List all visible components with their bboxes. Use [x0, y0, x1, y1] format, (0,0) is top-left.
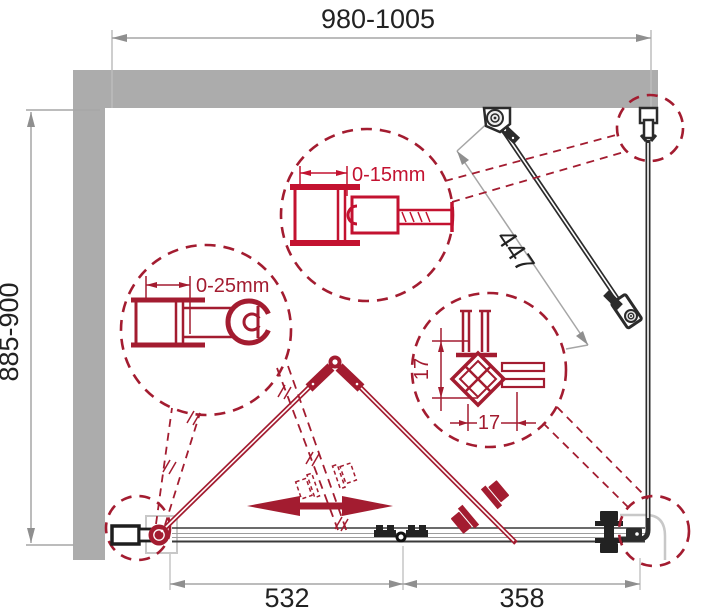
arrowhead-mid-right — [403, 580, 417, 588]
shower-enclosure-diagram: 980-1005 885-900 532 358 — [0, 0, 704, 608]
panel-to-support-clamp — [606, 293, 642, 328]
diagonal-label: 447 — [490, 224, 540, 278]
corner-profile-vertical-label: 17 — [411, 358, 433, 380]
door-swing-phantom — [163, 366, 357, 535]
top-wall-profile — [640, 108, 657, 141]
detail-corner-profile: 17 17 — [411, 311, 544, 434]
guide-clamp-left — [374, 525, 396, 537]
slide-direction-arrow — [247, 496, 393, 516]
arrowhead-top — [457, 151, 469, 165]
arrowhead-right — [636, 34, 651, 42]
phantom-knob — [295, 460, 358, 502]
detail-circle-left-profile — [121, 245, 291, 415]
wall-profile-top-label: 0-15mm — [352, 164, 425, 186]
guide-roller — [397, 533, 405, 541]
dimension-bottom: 532 358 — [170, 546, 640, 608]
door-pivot — [149, 525, 170, 546]
roller-knob-black — [595, 511, 623, 553]
wall-left — [73, 70, 105, 560]
arrowhead-right — [625, 580, 640, 588]
arrowhead-bottom — [576, 331, 588, 345]
right-fixed-panel — [606, 108, 657, 539]
wall-top — [73, 70, 658, 108]
top-width-label: 980-1005 — [321, 4, 435, 34]
left-height-label: 885-900 — [0, 282, 24, 381]
detail-left-profile: 0-25mm — [131, 275, 282, 345]
walls — [73, 70, 658, 560]
dimension-diagonal: 447 — [457, 119, 588, 349]
technical-drawing-canvas: 980-1005 885-900 532 358 — [0, 0, 704, 608]
guide-clamp-right — [406, 525, 428, 537]
corner-profile-horizontal-label: 17 — [478, 412, 500, 434]
diagonal-support-panel — [484, 108, 629, 316]
arrowhead-mid-left — [389, 580, 403, 588]
detail-top-profile: 0-15mm — [290, 164, 452, 243]
arrowhead-down — [27, 528, 35, 543]
left-wall-profile-assembly — [112, 526, 154, 544]
wall-profile-left-label: 0-25mm — [196, 275, 269, 297]
arrowhead-up — [27, 112, 35, 127]
bottom-door-width-label: 532 — [264, 583, 309, 608]
arrowhead-left — [112, 34, 127, 42]
bottom-side-width-label: 358 — [499, 583, 544, 608]
arrowhead-left — [170, 580, 185, 588]
